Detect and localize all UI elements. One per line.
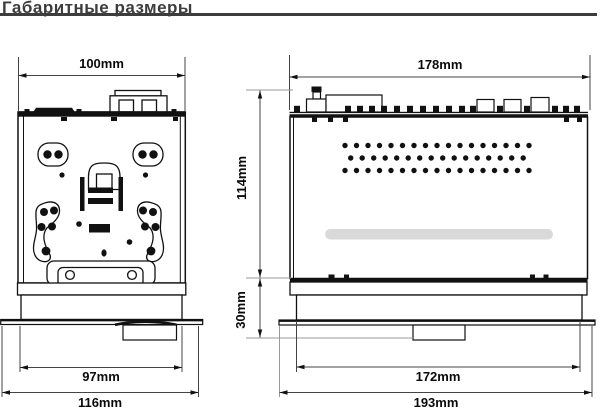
- front-knob-top-view: [123, 325, 177, 340]
- transformer-dome: [89, 163, 121, 190]
- top-view-rear-components: [25, 91, 177, 113]
- side-view-base: [279, 282, 595, 340]
- dim-label-97mm: 97mm: [63, 370, 139, 384]
- capacitor-pill-left: [38, 143, 68, 166]
- screw-dot: [59, 172, 64, 177]
- dim-label-172mm: 172mm: [396, 370, 480, 384]
- dim-label-100mm: 100mm: [61, 57, 142, 71]
- capacitor-pill-right: [133, 143, 163, 166]
- front-knob-side-view: [413, 325, 465, 340]
- side-view-chassis: [290, 112, 589, 282]
- dim-label-178mm: 178mm: [398, 58, 482, 72]
- dim-label-116mm: 116mm: [56, 396, 144, 409]
- dim-label-193mm: 193mm: [394, 396, 478, 409]
- manual-page: Габаритные размеры: [0, 0, 600, 409]
- dim-label-114mm: 114mm: [235, 143, 251, 213]
- display-slot: [325, 229, 553, 240]
- dim-114mm: [246, 90, 293, 278]
- top-view-front: [1, 283, 203, 340]
- antenna-cap: [312, 87, 322, 93]
- dim-label-30mm: 30mm: [234, 280, 250, 340]
- top-view-drawing: [1, 57, 203, 397]
- side-view-drawing: [246, 55, 595, 397]
- side-view-top-components: [294, 87, 580, 113]
- screw-dot: [143, 172, 148, 177]
